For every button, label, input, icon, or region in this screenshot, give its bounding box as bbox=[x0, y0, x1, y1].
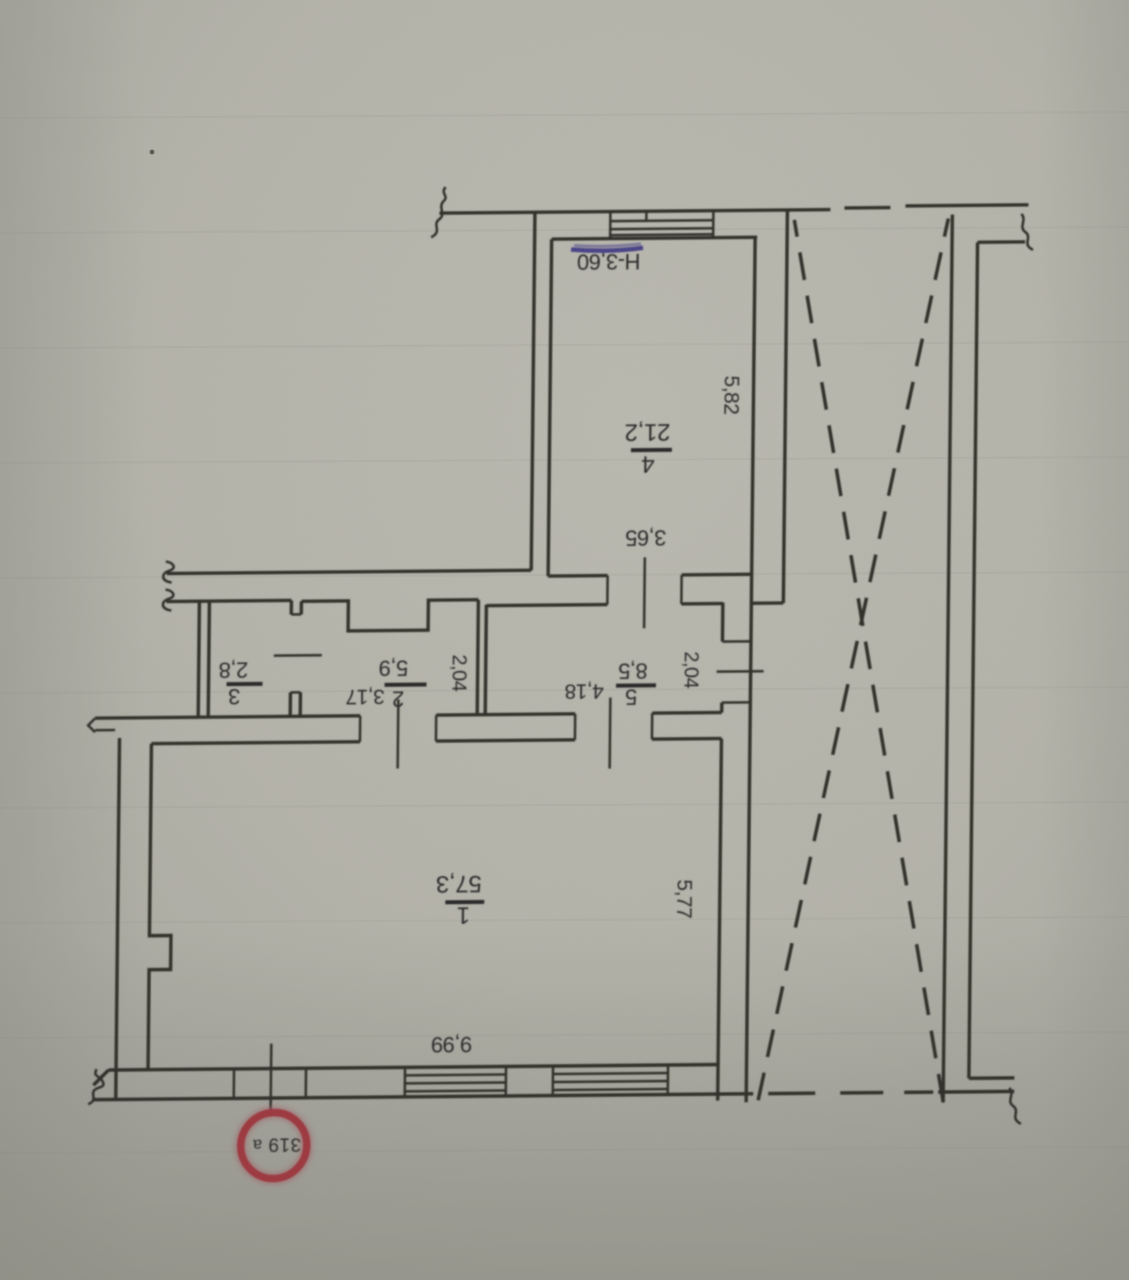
svg-text:5,9: 5,9 bbox=[379, 655, 409, 680]
svg-text:2: 2 bbox=[392, 686, 404, 711]
svg-text:9,99: 9,99 bbox=[431, 1032, 472, 1057]
svg-text:57,3: 57,3 bbox=[436, 870, 482, 897]
svg-text:5,77: 5,77 bbox=[672, 879, 695, 918]
svg-text:319 а: 319 а bbox=[252, 1133, 301, 1154]
svg-text:5,82: 5,82 bbox=[719, 375, 742, 414]
svg-text:3,17: 3,17 bbox=[346, 685, 385, 708]
svg-text:5: 5 bbox=[625, 684, 637, 709]
svg-text:3: 3 bbox=[228, 684, 240, 709]
svg-text:2,04: 2,04 bbox=[447, 654, 469, 691]
svg-text:4,18: 4,18 bbox=[565, 679, 604, 702]
svg-text:8,5: 8,5 bbox=[618, 658, 648, 683]
svg-text:21,2: 21,2 bbox=[625, 418, 671, 445]
svg-text:2,04: 2,04 bbox=[679, 651, 701, 688]
svg-text:3,65: 3,65 bbox=[625, 525, 666, 550]
svg-text:4: 4 bbox=[642, 450, 655, 477]
svg-text:2,8: 2,8 bbox=[219, 657, 249, 682]
svg-text:1: 1 bbox=[457, 901, 470, 928]
